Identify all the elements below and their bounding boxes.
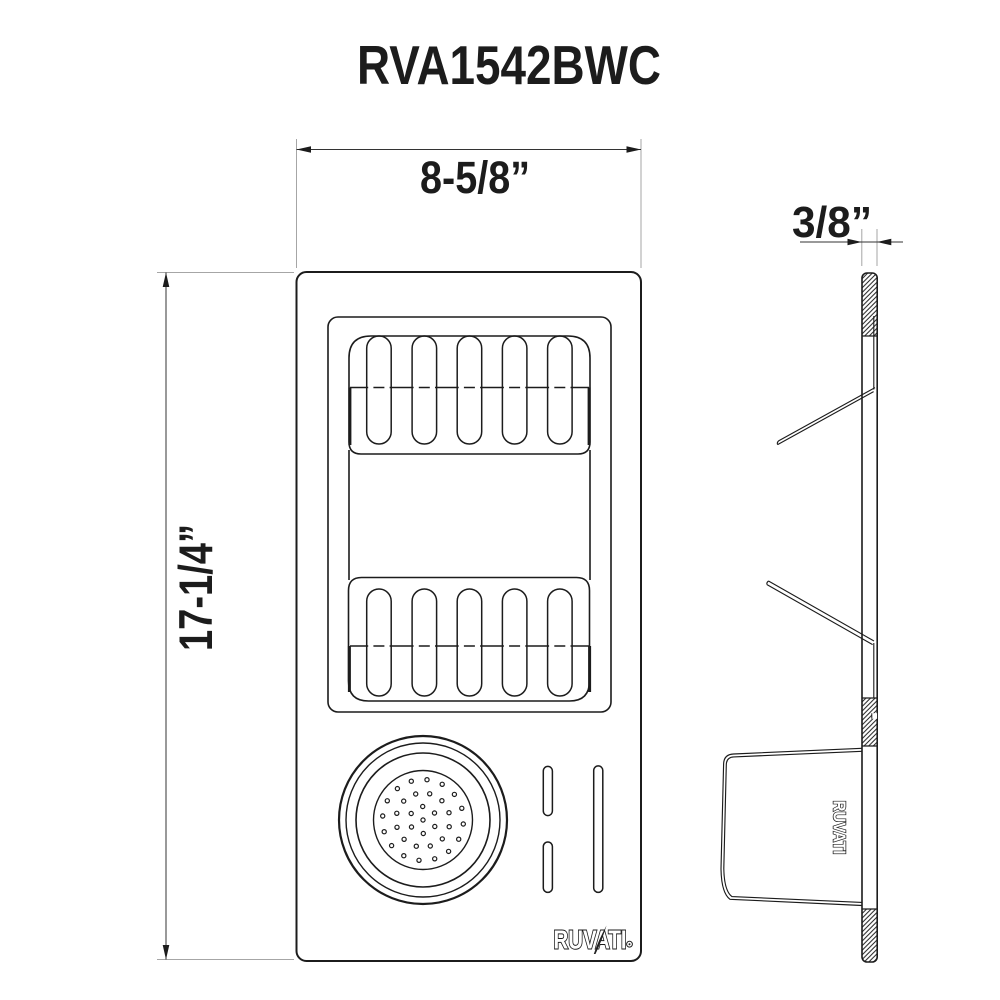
svg-text:RUVATI: RUVATI	[830, 801, 850, 855]
svg-text:17-1/4”: 17-1/4”	[169, 524, 222, 651]
svg-text:RVA1542BWC: RVA1542BWC	[357, 34, 661, 96]
svg-text:8-5/8”: 8-5/8”	[420, 152, 530, 203]
svg-text:3/8”: 3/8”	[792, 198, 872, 247]
svg-text:RUVATI: RUVATI	[554, 925, 627, 955]
